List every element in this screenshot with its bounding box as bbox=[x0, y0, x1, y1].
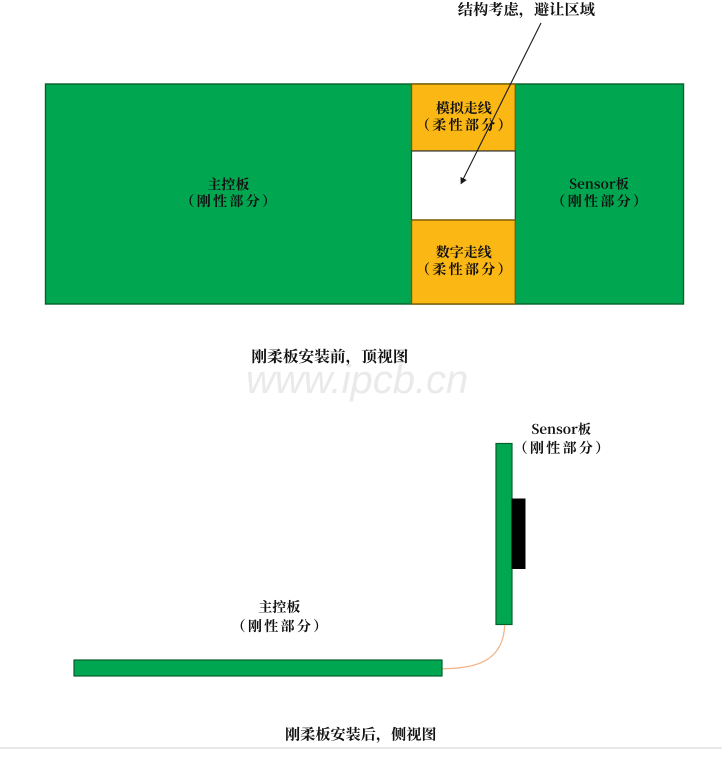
svg-text:www.ipcb.cn: www.ipcb.cn bbox=[246, 358, 468, 402]
